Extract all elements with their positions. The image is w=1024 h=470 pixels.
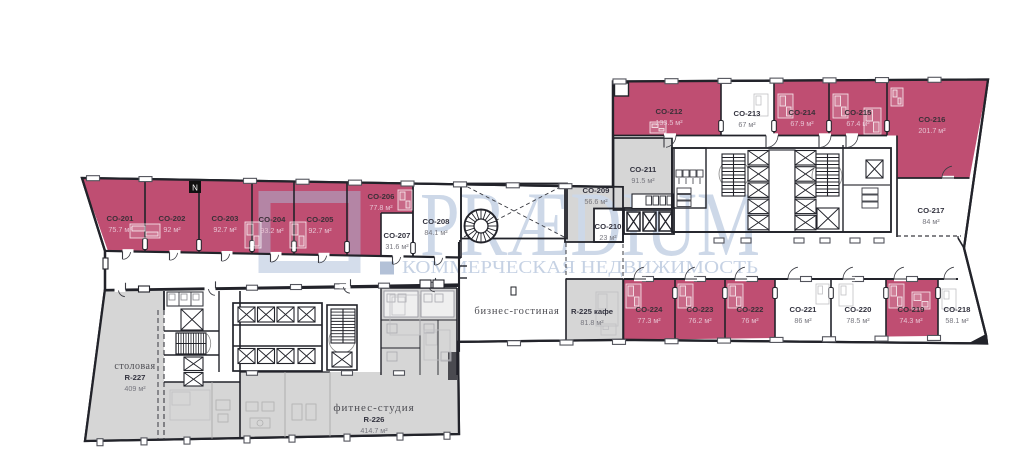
svg-text:CO-208: CO-208: [423, 217, 451, 226]
svg-text:CO-202: CO-202: [159, 214, 186, 223]
svg-text:CO-222: CO-222: [737, 305, 764, 314]
svg-text:67.9 м²: 67.9 м²: [790, 119, 814, 128]
svg-text:74.3 м²: 74.3 м²: [899, 316, 923, 325]
svg-text:CO-224: CO-224: [636, 305, 664, 314]
svg-text:R-227: R-227: [125, 373, 146, 382]
svg-text:CO-211: CO-211: [630, 165, 657, 174]
svg-text:67 м²: 67 м²: [738, 120, 756, 129]
svg-text:31.6 м²: 31.6 м²: [385, 242, 409, 251]
svg-text:133.5 м²: 133.5 м²: [655, 118, 683, 127]
svg-text:CO-213: CO-213: [734, 109, 761, 118]
svg-text:КОММЕРЧЕСКАЯ НЕДВИЖИМОСТЬ: КОММЕРЧЕСКАЯ НЕДВИЖИМОСТЬ: [402, 257, 758, 277]
svg-text:CO-216: CO-216: [919, 115, 946, 124]
svg-text:77.3 м²: 77.3 м²: [637, 316, 661, 325]
svg-text:CO-218: CO-218: [944, 305, 972, 314]
svg-text:77.8 м²: 77.8 м²: [369, 203, 393, 212]
svg-text:84.1 м²: 84.1 м²: [424, 228, 448, 237]
svg-text:R-225 кафе: R-225 кафе: [571, 307, 614, 316]
svg-text:R-226: R-226: [364, 415, 385, 424]
svg-text:CO-206: CO-206: [368, 192, 395, 201]
svg-text:CO-212: CO-212: [656, 107, 683, 116]
svg-text:CO-204: CO-204: [259, 215, 287, 224]
svg-text:столовая: столовая: [114, 361, 155, 372]
svg-text:84 м²: 84 м²: [922, 217, 940, 226]
svg-text:CO-210: CO-210: [595, 222, 622, 231]
svg-text:93.2 м²: 93.2 м²: [260, 226, 284, 235]
svg-text:409 м²: 409 м²: [124, 384, 146, 393]
svg-text:58.1 м²: 58.1 м²: [945, 316, 969, 325]
svg-text:23 м²: 23 м²: [599, 233, 617, 242]
svg-text:CO-214: CO-214: [789, 108, 817, 117]
svg-text:92 м²: 92 м²: [163, 225, 181, 234]
svg-text:CO-201: CO-201: [107, 214, 135, 223]
svg-text:CO-215: CO-215: [845, 108, 873, 117]
svg-text:414.7 м²: 414.7 м²: [360, 426, 388, 435]
svg-text:81.8 м²: 81.8 м²: [580, 318, 604, 327]
svg-text:86 м²: 86 м²: [794, 316, 812, 325]
svg-text:76.2 м²: 76.2 м²: [688, 316, 712, 325]
svg-text:фитнес-студия: фитнес-студия: [333, 402, 414, 414]
svg-text:91.5 м²: 91.5 м²: [631, 176, 655, 185]
svg-text:67.4 м²: 67.4 м²: [846, 119, 870, 128]
svg-text:CO-219: CO-219: [898, 305, 925, 314]
svg-text:92.7 м²: 92.7 м²: [213, 225, 237, 234]
svg-text:CO-203: CO-203: [212, 214, 239, 223]
svg-text:CO-223: CO-223: [687, 305, 714, 314]
svg-text:CO-221: CO-221: [790, 305, 818, 314]
svg-text:CO-209: CO-209: [583, 186, 610, 195]
svg-text:76 м²: 76 м²: [741, 316, 759, 325]
svg-text:бизнес-гостиная: бизнес-гостиная: [474, 306, 559, 317]
svg-text:78.5 м²: 78.5 м²: [846, 316, 870, 325]
svg-text:N: N: [192, 184, 198, 193]
svg-text:92.7 м²: 92.7 м²: [308, 226, 332, 235]
svg-text:56.6 м²: 56.6 м²: [584, 197, 608, 206]
svg-text:CO-205: CO-205: [307, 215, 335, 224]
svg-text:75.7 м²: 75.7 м²: [108, 225, 132, 234]
svg-text:201.7 м²: 201.7 м²: [918, 126, 946, 135]
svg-text:CO-220: CO-220: [845, 305, 872, 314]
svg-text:CO-207: CO-207: [384, 231, 411, 240]
svg-text:CO-217: CO-217: [918, 206, 945, 215]
